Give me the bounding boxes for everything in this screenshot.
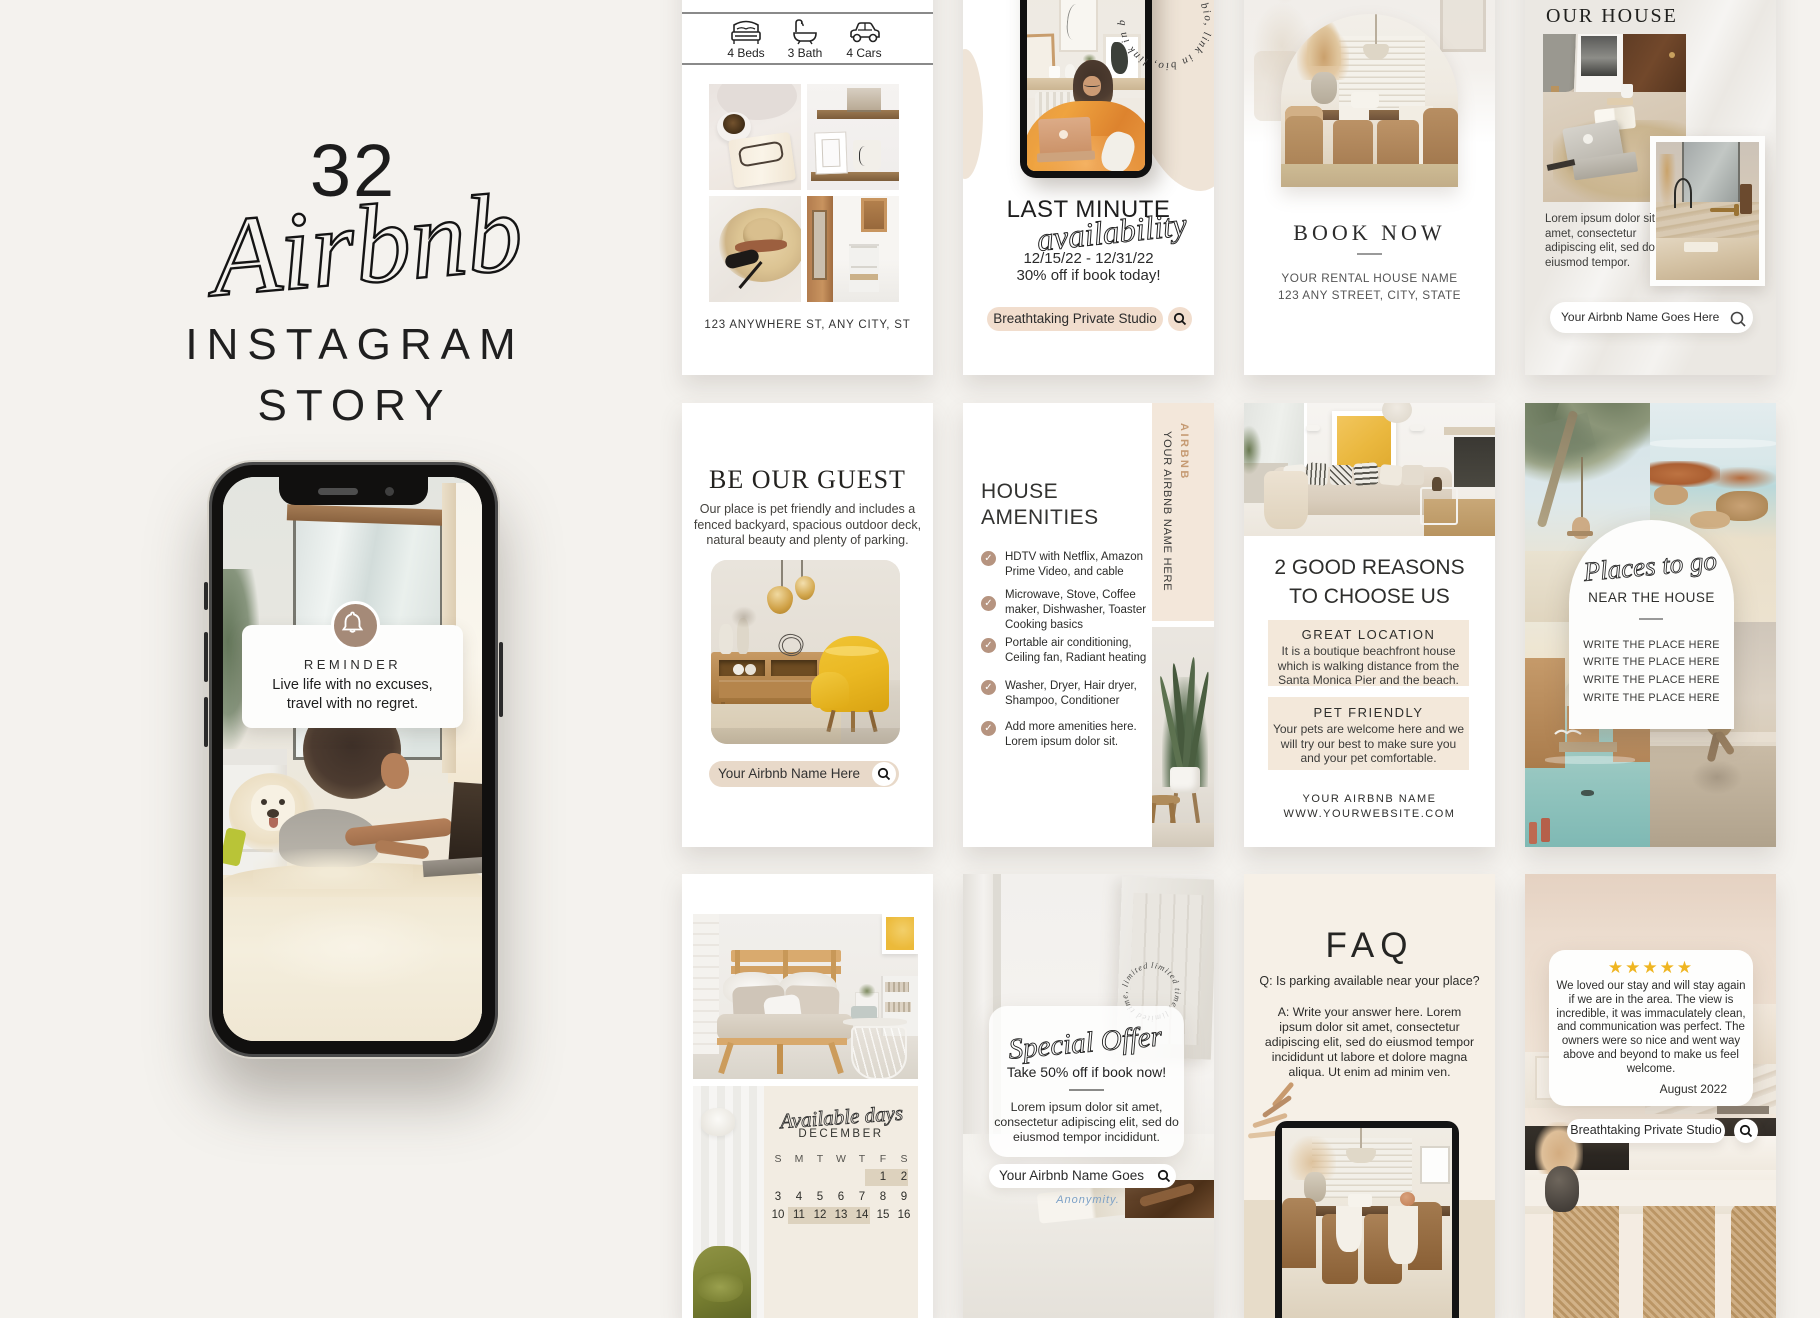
svg-text:Airbnb: Airbnb [199, 185, 527, 315]
svg-text:link in bio, link in bio, link: link in bio, link in bio, link in b [1116, 0, 1214, 72]
svg-text:Places to go: Places to go [1581, 545, 1718, 587]
svg-text:Special Offer: Special Offer [1007, 1020, 1164, 1065]
